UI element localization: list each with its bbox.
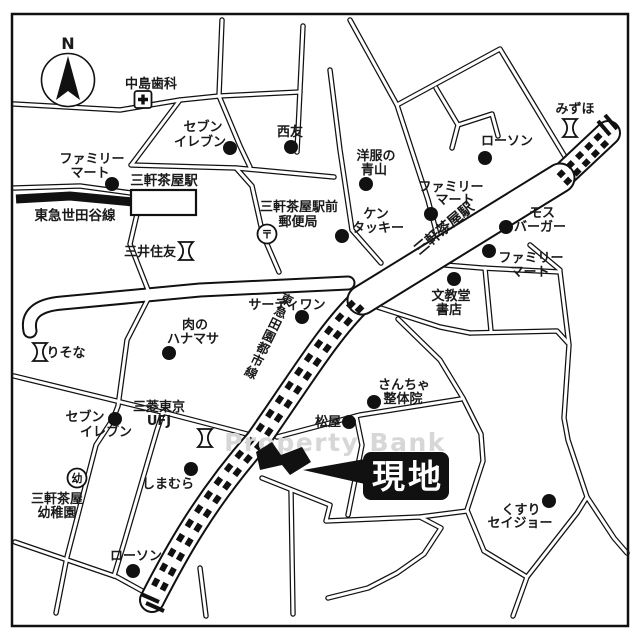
map-canvas: 三軒茶屋駅 東急田園都市線 三軒茶屋駅 東急世田谷線 Property Bank…: [0, 0, 640, 640]
label-sancha-2: 整体院: [382, 391, 422, 407]
dot-yofuku-no-aoyama: [359, 177, 373, 191]
label-post-office-1: 三軒茶屋駅前: [260, 199, 338, 215]
dot-bunkyodo-shoten: [447, 272, 461, 286]
dot-familymart-east: [482, 244, 496, 258]
label-lawson-south: ローソン: [110, 549, 162, 564]
map-background: [0, 0, 640, 640]
label-seiyu: 西友: [277, 124, 303, 140]
label-bunkyodo-1: 文教堂: [431, 288, 470, 304]
dot-kusuri-seijo: [542, 494, 556, 508]
label-hanamasa-2: ハナマサ: [167, 332, 219, 347]
hospital-icon: [135, 91, 152, 108]
label-thirty-one: サーティワン: [248, 298, 325, 313]
dot-seven-eleven-south: [108, 412, 122, 426]
dot-seiyu: [284, 140, 298, 154]
svg-text:幼: 幼: [72, 471, 83, 485]
label-kentucky-2: タッキー: [352, 221, 404, 236]
label-familymart-east-2: マート: [510, 265, 549, 280]
label-kentucky-1: ケン: [363, 207, 389, 222]
label-familymart-center-2: マート: [435, 193, 474, 208]
label-post-office-2: 郵便局: [278, 214, 317, 230]
label-ufj-2: UFJ: [147, 414, 171, 429]
label-mos-burger-2: バーガー: [514, 220, 566, 235]
dot-niku-no-hanamasa: [162, 346, 176, 360]
label-seven-eleven-north-2: イレブン: [174, 134, 226, 150]
label-aoyama-2: 青山: [361, 162, 387, 178]
label-sancha-1: さんちゃ: [378, 378, 430, 393]
label-kusuri-seijo-2: セイジョー: [487, 516, 552, 531]
dot-matsuya: [342, 415, 356, 429]
label-kindergarten-1: 三軒茶屋: [31, 491, 83, 507]
map-page: 三軒茶屋駅 東急田園都市線 三軒茶屋駅 東急世田谷線 Property Bank…: [0, 0, 640, 640]
compass-label: N: [61, 34, 74, 53]
dot-shimamura: [184, 462, 198, 476]
label-mos-burger-1: モス: [529, 206, 555, 221]
setagaya-station-box: [131, 190, 196, 215]
dot-familymart-center: [424, 207, 438, 221]
label-kindergarten-2: 幼稚園: [37, 505, 76, 521]
label-risona: りそな: [46, 346, 85, 361]
label-bunkyodo-2: 書店: [436, 302, 462, 318]
label-seven-eleven-south-2: イレブン: [80, 424, 132, 440]
kindergarten-icon: 幼: [68, 469, 87, 488]
svg-text:〒: 〒: [262, 228, 273, 241]
label-familymart-west-2: マート: [70, 166, 109, 181]
label-mizuho: みずほ: [555, 101, 594, 117]
dot-kentucky: [335, 229, 349, 243]
label-aoyama-1: 洋服の: [356, 148, 395, 164]
label-familymart-east-1: ファミリー: [498, 251, 563, 266]
label-hanamasa-1: 肉の: [182, 317, 208, 333]
setagaya-line-label: 東急世田谷線: [35, 207, 116, 224]
label-seven-eleven-south-1: セブン: [65, 409, 104, 425]
dot-mos-burger: [499, 220, 513, 234]
site-label: 現地: [372, 457, 444, 496]
post-office-icon: 〒: [258, 225, 277, 244]
label-ufj-1: 三菱東京: [133, 399, 185, 415]
label-matsuya: 松屋: [315, 414, 341, 430]
label-lawson-north: ローソン: [481, 134, 533, 149]
label-nakajima-dental: 中島歯科: [125, 76, 177, 92]
label-seven-eleven-north-1: セブン: [183, 119, 222, 135]
label-familymart-west-1: ファミリー: [59, 152, 124, 167]
label-shimamura: しまむら: [142, 477, 194, 492]
dot-sancha-seitaiin: [367, 395, 381, 409]
dot-lawson-north: [478, 151, 492, 165]
dot-lawson-south: [126, 564, 140, 578]
setagaya-station-label: 三軒茶屋駅: [130, 172, 198, 189]
label-mitsui-sumitomo: 三井住友: [124, 244, 176, 260]
